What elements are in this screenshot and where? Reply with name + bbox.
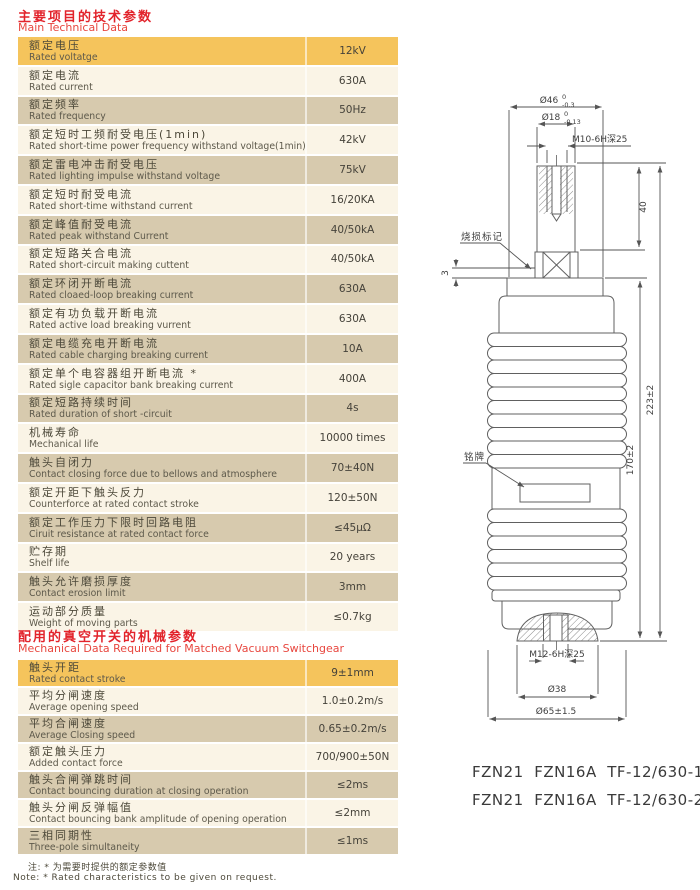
table-row: 额定工作压力下限时回路电阻 Ciruit resistance at rated… xyxy=(18,514,398,544)
dim-170: 170±2 xyxy=(626,445,636,475)
row-label-en: Rated current xyxy=(29,82,305,93)
table-row: 额定环闭开断电流 Rated cloaed-loop breaking curr… xyxy=(18,275,398,305)
row-value: 40/50kA xyxy=(307,246,398,274)
row-value: 70±40N xyxy=(307,454,398,482)
row-label-en: Rated short-time withstand current xyxy=(29,201,305,212)
main-technical-data-table: 额定电压 Rated voltatge 12kV 额定电流 Rated curr… xyxy=(18,37,398,633)
bellows-lower xyxy=(488,509,627,590)
row-value: 10A xyxy=(307,335,398,363)
row-label-en: Rated peak withstand Current xyxy=(29,231,305,242)
row-label-zh: 额定短路关合电流 xyxy=(29,247,305,260)
row-value: 40/50kA xyxy=(307,216,398,244)
row-label-en: Rated cable charging breaking current xyxy=(29,350,305,361)
row-label: 额定有功负载开断电流 Rated active load breaking vu… xyxy=(18,305,305,333)
top-cap-skirt xyxy=(499,296,614,333)
table-row: 额定触头压力 Added contact force 700/900±50N xyxy=(18,744,398,772)
row-value: ≤2mm xyxy=(307,800,398,826)
row-label: 三相同期性 Three-pole simultaneity xyxy=(18,828,305,854)
table-row: 触头合闸弹跳时间 Contact bouncing duration at cl… xyxy=(18,772,398,800)
row-label-zh: 额定有功负载开断电流 xyxy=(29,307,305,320)
table-row: 贮存期 Shelf life 20 years xyxy=(18,544,398,574)
row-label: 平均分闸速度 Average opening speed xyxy=(18,688,305,714)
row-label-zh: 触头合闸弹跳时间 xyxy=(29,773,305,786)
table-row: 额定短时工频耐受电压(1min) Rated short-time power … xyxy=(18,126,398,156)
technical-drawing: Ø46 0 -0.3 Ø18 0 -0.13 M10-6H深25 烧损标记 3 … xyxy=(430,85,700,765)
table-row: 额定电缆充电开断电流 Rated cable charging breaking… xyxy=(18,335,398,365)
table-row: 额定有功负载开断电流 Rated active load breaking vu… xyxy=(18,305,398,335)
table-row: 平均分闸速度 Average opening speed 1.0±0.2m/s xyxy=(18,688,398,716)
table-row: 额定频率 Rated frequency 50Hz xyxy=(18,97,398,127)
row-label: 额定电流 Rated current xyxy=(18,67,305,95)
row-label-en: Rated cloaed-loop breaking current xyxy=(29,290,305,301)
row-label-en: Rated duration of short -circuit xyxy=(29,409,305,420)
row-label-en: Contact closing force due to bellows and… xyxy=(29,469,305,480)
row-label: 额定短路持续时间 Rated duration of short -circui… xyxy=(18,395,305,423)
row-value: ≤2ms xyxy=(307,772,398,798)
table-row: 额定电流 Rated current 630A xyxy=(18,67,398,97)
dim-dia18: Ø18 xyxy=(542,112,561,123)
note-en: Note: * Rated characteristics to be give… xyxy=(13,873,277,883)
row-value: 700/900±50N xyxy=(307,744,398,770)
row-label-zh: 额定电缆充电开断电流 xyxy=(29,337,305,350)
row-value: 9±1mm xyxy=(307,660,398,686)
row-label-zh: 运动部分质量 xyxy=(29,605,305,618)
row-label: 触头开距 Rated contact stroke xyxy=(18,660,305,686)
bellows-upper xyxy=(488,333,627,468)
table-row: 额定单个电容器组开断电流 * Rated sigle capacitor ban… xyxy=(18,365,398,395)
row-label-en: Contact erosion limit xyxy=(29,588,305,599)
table-row: 触头允许磨损厚度 Contact erosion limit 3mm xyxy=(18,573,398,603)
burn-mark-label: 烧损标记 xyxy=(461,231,503,243)
row-label-en: Rated lighting impulse withstand voltage xyxy=(29,171,305,182)
row-label-en: Rated short-time power frequency withsta… xyxy=(29,141,305,152)
table-row: 额定短路关合电流 Rated short-circuit making cutt… xyxy=(18,246,398,276)
table-row: 触头开距 Rated contact stroke 9±1mm xyxy=(18,660,398,688)
row-label-zh: 额定峰值耐受电流 xyxy=(29,218,305,231)
table-row: 额定开距下触头反力 Counterforce at rated contact … xyxy=(18,484,398,514)
dim-dia38: Ø38 xyxy=(548,684,567,695)
row-label: 额定雷电冲击耐受电压 Rated lighting impulse withst… xyxy=(18,156,305,184)
row-label: 额定电压 Rated voltatge xyxy=(18,37,305,65)
row-value: ≤0.7kg xyxy=(307,603,398,631)
row-label-en: Counterforce at rated contact stroke xyxy=(29,499,305,510)
dim-dia46-tol-up: 0 xyxy=(562,93,566,101)
row-label: 额定频率 Rated frequency xyxy=(18,97,305,125)
row-label: 平均合闸速度 Average Closing speed xyxy=(18,716,305,742)
row-label: 额定短时耐受电流 Rated short-time withstand curr… xyxy=(18,186,305,214)
row-label-zh: 额定雷电冲击耐受电压 xyxy=(29,158,305,171)
row-value: 630A xyxy=(307,305,398,333)
row-value: 400A xyxy=(307,365,398,393)
row-value: 0.65±0.2m/s xyxy=(307,716,398,742)
row-value: 4s xyxy=(307,395,398,423)
row-label: 额定短时工频耐受电压(1min) Rated short-time power … xyxy=(18,126,305,154)
row-label: 触头合闸弹跳时间 Contact bouncing duration at cl… xyxy=(18,772,305,798)
row-label: 额定开距下触头反力 Counterforce at rated contact … xyxy=(18,484,305,512)
row-label-zh: 额定单个电容器组开断电流 * xyxy=(29,367,305,380)
row-value: 630A xyxy=(307,67,398,95)
dim-dia18-tol-up: 0 xyxy=(564,110,568,118)
row-label-en: Three-pole simultaneity xyxy=(29,842,305,853)
row-label-en: Average Closing speed xyxy=(29,730,305,741)
table-row: 触头自闭力 Contact closing force due to bello… xyxy=(18,454,398,484)
row-value: ≤45μΩ xyxy=(307,514,398,542)
dim-dia18-tol-dn: -0.13 xyxy=(564,118,581,126)
dim-40: 40 xyxy=(639,201,649,213)
row-label: 额定工作压力下限时回路电阻 Ciruit resistance at rated… xyxy=(18,514,305,542)
row-label: 额定电缆充电开断电流 Rated cable charging breaking… xyxy=(18,335,305,363)
row-label-zh: 额定短时耐受电流 xyxy=(29,188,305,201)
row-label-en: Rated active load breaking vurrent xyxy=(29,320,305,331)
mechanical-data-table: 触头开距 Rated contact stroke 9±1mm 平均分闸速度 A… xyxy=(18,660,398,856)
row-label-zh: 额定工作压力下限时回路电阻 xyxy=(29,516,305,529)
row-label-en: Rated sigle capacitor bank breaking curr… xyxy=(29,380,305,391)
dim-dia65: Ø65±1.5 xyxy=(536,706,576,717)
row-label: 额定环闭开断电流 Rated cloaed-loop breaking curr… xyxy=(18,275,305,303)
row-value: 42kV xyxy=(307,126,398,154)
row-label-zh: 触头允许磨损厚度 xyxy=(29,575,305,588)
row-label-zh: 额定电压 xyxy=(29,39,305,52)
table-row: 额定雷电冲击耐受电压 Rated lighting impulse withst… xyxy=(18,156,398,186)
note-zh: 注: * 为需要时提供的额定参数值 xyxy=(28,860,167,873)
row-label-zh: 三相同期性 xyxy=(29,829,305,842)
row-label-zh: 平均合闸速度 xyxy=(29,717,305,730)
row-value: 16/20KA xyxy=(307,186,398,214)
section1-title-en: Main Technical Data xyxy=(18,21,128,34)
row-value: 10000 times xyxy=(307,424,398,452)
row-label-en: Average opening speed xyxy=(29,702,305,713)
model-designation-1: FZN21 FZN16A TF-12/630-16 xyxy=(472,763,700,781)
row-label: 额定短路关合电流 Rated short-circuit making cutt… xyxy=(18,246,305,274)
thread-hatch-left xyxy=(539,167,552,214)
row-value: 75kV xyxy=(307,156,398,184)
row-label-en: Rated voltatge xyxy=(29,52,305,63)
dim-thread-bottom: M12-6H深25 xyxy=(529,649,584,660)
row-label: 贮存期 Shelf life xyxy=(18,544,305,572)
dim-dia46-tol-dn: -0.3 xyxy=(562,101,575,109)
row-label-zh: 机械寿命 xyxy=(29,426,305,439)
row-label-en: Mechanical life xyxy=(29,439,305,450)
row-label-zh: 额定开距下触头反力 xyxy=(29,486,305,499)
row-value: 120±50N xyxy=(307,484,398,512)
table-row: 机械寿命 Mechanical life 10000 times xyxy=(18,424,398,454)
table-row: 额定峰值耐受电流 Rated peak withstand Current 40… xyxy=(18,216,398,246)
dim-3: 3 xyxy=(441,270,451,276)
row-value: 12kV xyxy=(307,37,398,65)
table-row: 三相同期性 Three-pole simultaneity ≤1ms xyxy=(18,828,398,856)
row-value: 20 years xyxy=(307,544,398,572)
model-designation-2: FZN21 FZN16A TF-12/630-20 xyxy=(472,791,700,809)
row-value: 50Hz xyxy=(307,97,398,125)
row-value: ≤1ms xyxy=(307,828,398,854)
row-label-en: Rated frequency xyxy=(29,111,305,122)
row-label-zh: 额定短时工频耐受电压(1min) xyxy=(29,128,305,141)
row-value: 3mm xyxy=(307,573,398,601)
table-row: 额定短时耐受电流 Rated short-time withstand curr… xyxy=(18,186,398,216)
row-label-en: Added contact force xyxy=(29,758,305,769)
row-label: 触头允许磨损厚度 Contact erosion limit xyxy=(18,573,305,601)
row-label-en: Contact bouncing bank amplitude of openi… xyxy=(29,814,305,825)
bottom-shoulder xyxy=(492,590,620,601)
row-label-zh: 触头分闸反弹幅值 xyxy=(29,801,305,814)
nameplate-label: 铭牌 xyxy=(464,451,485,463)
row-label-en: Ciruit resistance at rated contact force xyxy=(29,529,305,540)
row-label-zh: 额定频率 xyxy=(29,98,305,111)
row-label-zh: 触头开距 xyxy=(29,661,305,674)
row-value: 630A xyxy=(307,275,398,303)
row-label-en: Rated contact stroke xyxy=(29,674,305,685)
row-label: 额定触头压力 Added contact force xyxy=(18,744,305,770)
row-value: 1.0±0.2m/s xyxy=(307,688,398,714)
row-label-zh: 触头自闭力 xyxy=(29,456,305,469)
row-label-en: Shelf life xyxy=(29,558,305,569)
row-label-en: Rated short-circuit making cuttent xyxy=(29,260,305,271)
row-label-en: Contact bouncing duration at closing ope… xyxy=(29,786,305,797)
table-row: 额定短路持续时间 Rated duration of short -circui… xyxy=(18,395,398,425)
row-label-zh: 贮存期 xyxy=(29,545,305,558)
row-label-zh: 额定触头压力 xyxy=(29,745,305,758)
dim-thread-top: M10-6H深25 xyxy=(572,134,627,145)
dim-223: 223±2 xyxy=(646,385,656,415)
row-label: 额定单个电容器组开断电流 * Rated sigle capacitor ban… xyxy=(18,365,305,393)
section2-title-en: Mechanical Data Required for Matched Vac… xyxy=(18,642,344,655)
table-row: 额定电压 Rated voltatge 12kV xyxy=(18,37,398,67)
row-label-zh: 额定环闭开断电流 xyxy=(29,277,305,290)
row-label: 额定峰值耐受电流 Rated peak withstand Current xyxy=(18,216,305,244)
top-cap-plate xyxy=(507,278,603,296)
row-label: 触头自闭力 Contact closing force due to bello… xyxy=(18,454,305,482)
row-label-zh: 平均分闸速度 xyxy=(29,689,305,702)
row-label: 机械寿命 Mechanical life xyxy=(18,424,305,452)
table-row: 触头分闸反弹幅值 Contact bouncing bank amplitude… xyxy=(18,800,398,828)
row-label-zh: 额定电流 xyxy=(29,69,305,82)
dim-dia46: Ø46 xyxy=(540,95,559,106)
row-label: 触头分闸反弹幅值 Contact bouncing bank amplitude… xyxy=(18,800,305,826)
row-label-zh: 额定短路持续时间 xyxy=(29,396,305,409)
table-row: 平均合闸速度 Average Closing speed 0.65±0.2m/s xyxy=(18,716,398,744)
nameplate-rect xyxy=(520,484,590,502)
